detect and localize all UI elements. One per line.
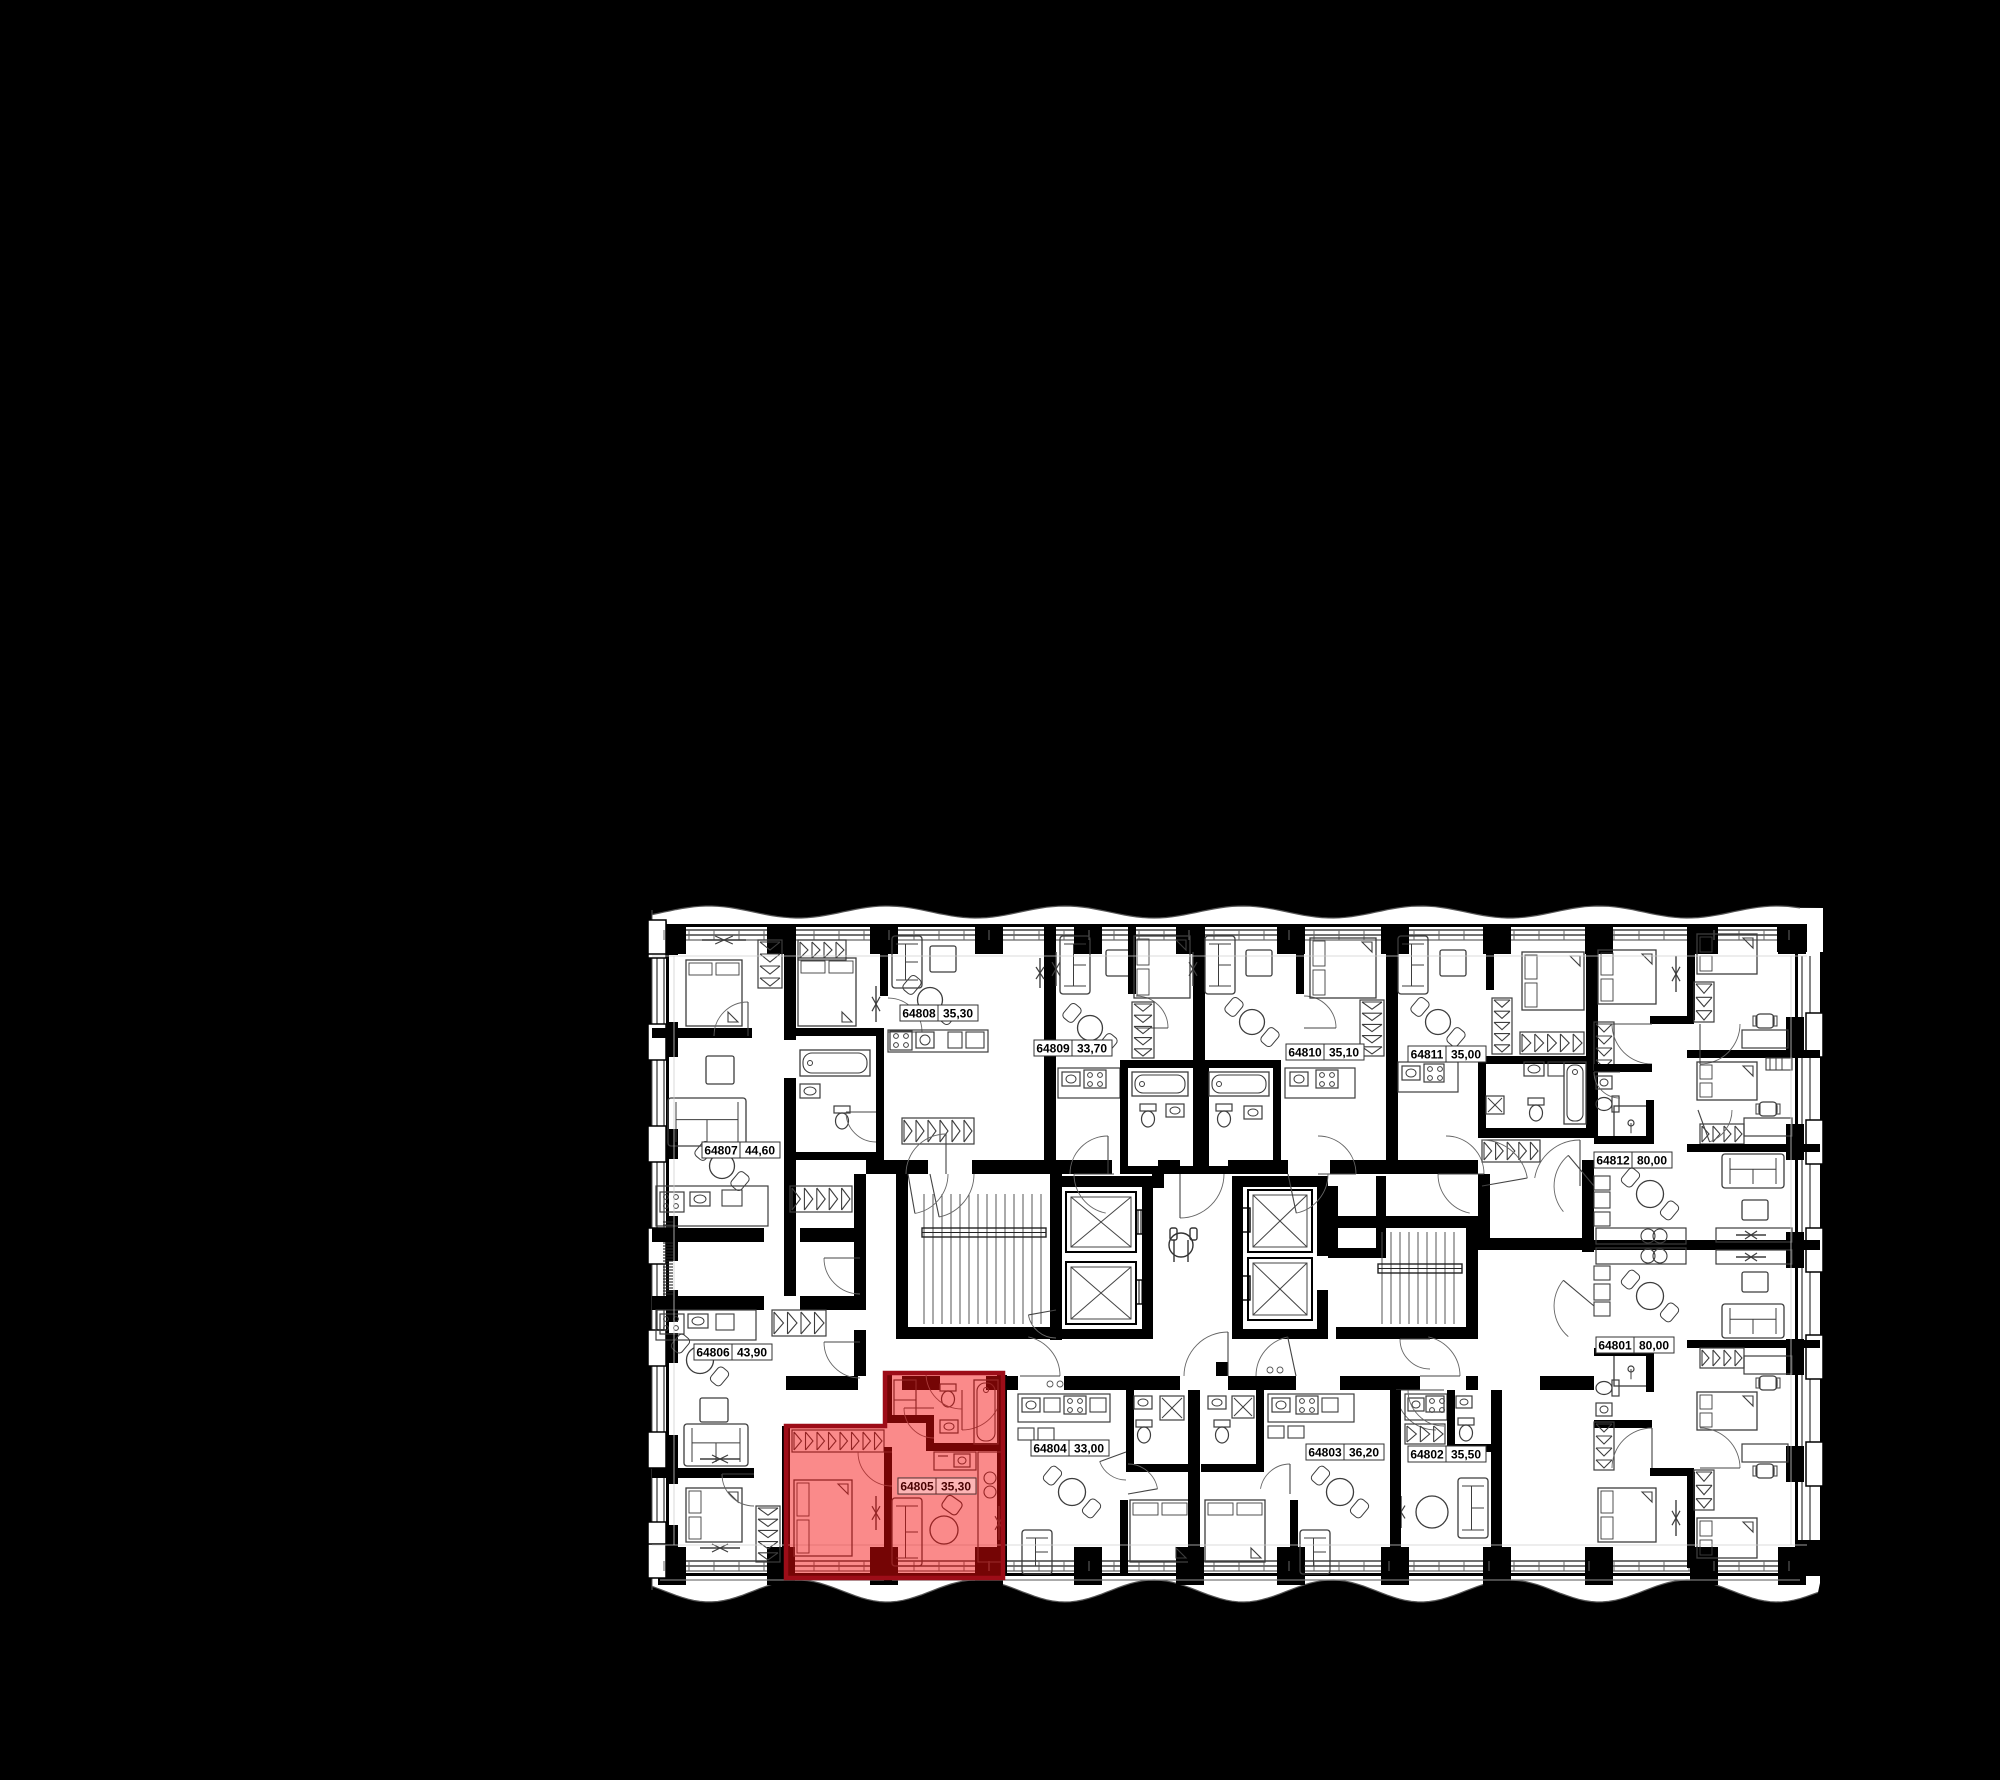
svg-text:80,00: 80,00 xyxy=(1637,1154,1667,1168)
svg-text:36,20: 36,20 xyxy=(1349,1446,1379,1460)
svg-text:64804: 64804 xyxy=(1033,1442,1067,1456)
svg-text:80,00: 80,00 xyxy=(1639,1339,1669,1353)
svg-text:35,30: 35,30 xyxy=(943,1007,973,1021)
svg-text:33,70: 33,70 xyxy=(1077,1042,1107,1056)
svg-text:35,10: 35,10 xyxy=(1329,1046,1359,1060)
svg-text:64803: 64803 xyxy=(1308,1446,1342,1460)
svg-text:43,90: 43,90 xyxy=(737,1346,767,1360)
svg-text:64812: 64812 xyxy=(1596,1154,1630,1168)
svg-text:64811: 64811 xyxy=(1411,1048,1444,1062)
svg-text:64807: 64807 xyxy=(704,1144,738,1158)
svg-text:44,60: 44,60 xyxy=(745,1144,775,1158)
svg-text:64801: 64801 xyxy=(1598,1339,1632,1353)
svg-text:35,50: 35,50 xyxy=(1451,1448,1481,1462)
svg-text:33,00: 33,00 xyxy=(1074,1442,1104,1456)
svg-text:64806: 64806 xyxy=(696,1346,730,1360)
svg-text:64802: 64802 xyxy=(1410,1448,1444,1462)
svg-text:64808: 64808 xyxy=(902,1007,936,1021)
svg-text:35,00: 35,00 xyxy=(1451,1048,1481,1062)
svg-text:64809: 64809 xyxy=(1036,1042,1070,1056)
svg-text:64810: 64810 xyxy=(1288,1046,1322,1060)
